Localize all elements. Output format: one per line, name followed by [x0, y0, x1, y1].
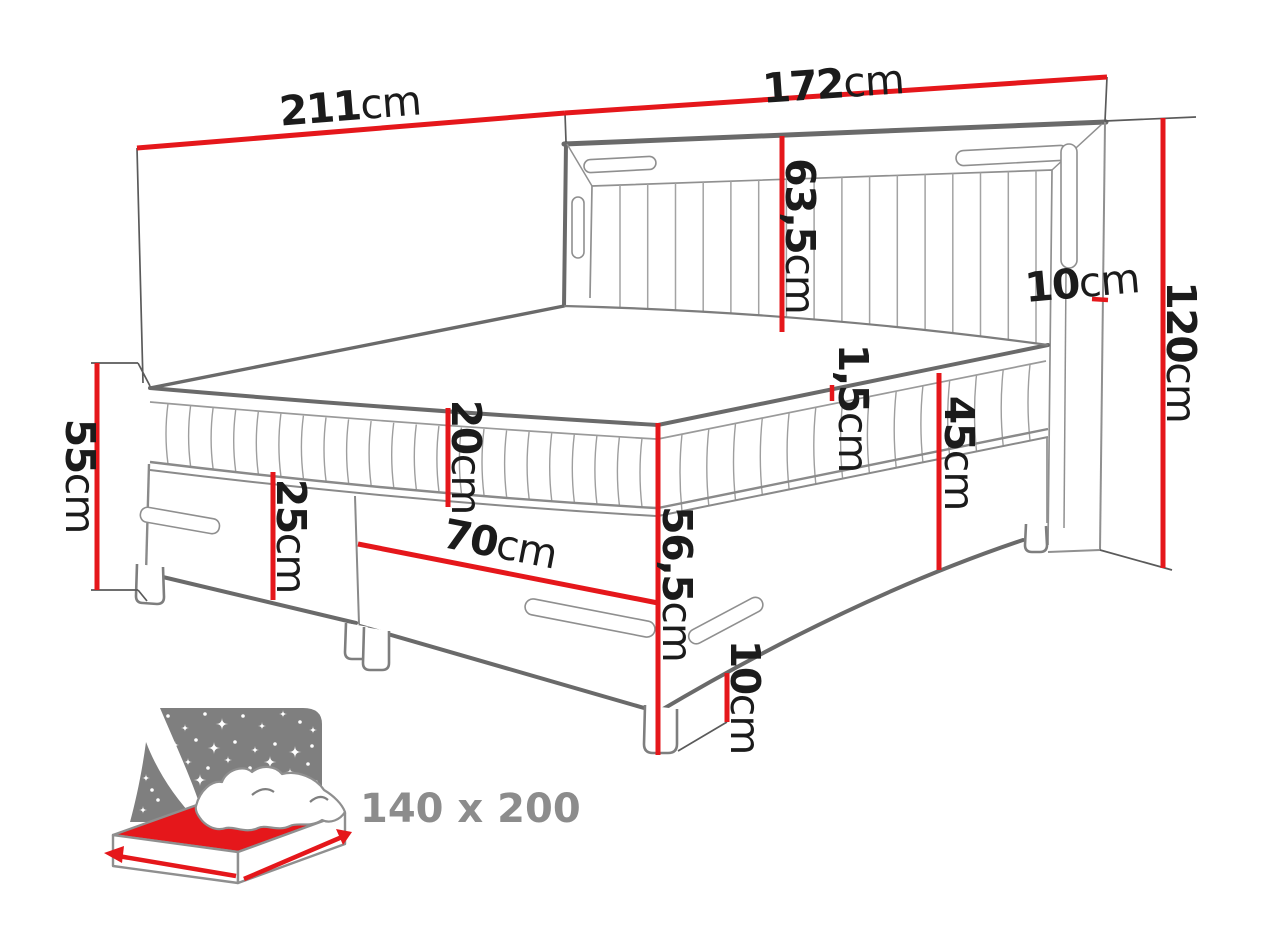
- star-icon: [156, 798, 160, 802]
- headboard-foot: [1025, 524, 1047, 552]
- star-icon: [203, 712, 207, 716]
- star-icon: [166, 762, 170, 766]
- star-icon: [178, 784, 182, 788]
- star-icon: [150, 788, 154, 792]
- dimension-label: 1,5cm: [829, 344, 877, 473]
- star-icon: [206, 766, 210, 770]
- page: 211cm 172cm 63,5cm 10cm 120cm 55cm 20cm: [0, 0, 1261, 945]
- led-slot-side-right-icon: [1061, 144, 1077, 268]
- dimension-label: 120cm: [1157, 281, 1205, 423]
- star-icon: [298, 720, 302, 724]
- bed-leg-center-back: [363, 627, 389, 670]
- bed-size-icon: 140 x 200: [104, 708, 581, 883]
- star-icon: [310, 744, 314, 748]
- headboard-left-edge: [564, 143, 566, 307]
- star-icon: [241, 714, 245, 718]
- star-icon: [273, 742, 277, 746]
- dimension-label: 56,5cm: [653, 506, 701, 662]
- size-badge-label: 140 x 200: [360, 786, 581, 832]
- dimension-leg-height: 10cm: [721, 640, 769, 755]
- dimension-headboard-side-width: 10cm: [1023, 254, 1141, 312]
- star-icon: [306, 762, 310, 766]
- led-slot-top-left-icon: [584, 156, 657, 173]
- dimension-label: 55cm: [56, 419, 104, 534]
- bed-dimension-diagram: 211cm 172cm 63,5cm 10cm 120cm 55cm 20cm: [0, 0, 1261, 945]
- dimension-topper-height: 1,5cm: [829, 344, 877, 473]
- dimension-label: 172cm: [761, 55, 906, 113]
- dimension-base-front-height: 25cm: [267, 472, 315, 600]
- dimension-label: 25cm: [267, 479, 315, 594]
- star-icon: [135, 758, 139, 762]
- star-icon: [166, 714, 170, 718]
- star-icon: [233, 740, 237, 744]
- dimension-label: 20cm: [442, 400, 490, 515]
- led-slot-side-left-icon: [572, 197, 584, 258]
- dimension-headboard-height: 120cm: [1157, 118, 1205, 568]
- star-icon: [132, 793, 136, 797]
- dimension-headboard-width: 172cm: [565, 55, 1107, 113]
- dimension-label: 10cm: [721, 640, 769, 755]
- bed-leg-left: [136, 564, 164, 604]
- dimension-label: 63,5cm: [776, 158, 824, 314]
- dimension-label: 10cm: [1023, 254, 1141, 312]
- star-icon: [194, 738, 198, 742]
- dimension-total-length: 211cm: [137, 76, 565, 148]
- dimension-mattress-height: 20cm: [442, 400, 490, 515]
- dimension-headboard-panel-height: 63,5cm: [776, 136, 824, 332]
- dimension-label: 45cm: [935, 396, 983, 511]
- dimension-side-height: 55cm: [56, 363, 104, 590]
